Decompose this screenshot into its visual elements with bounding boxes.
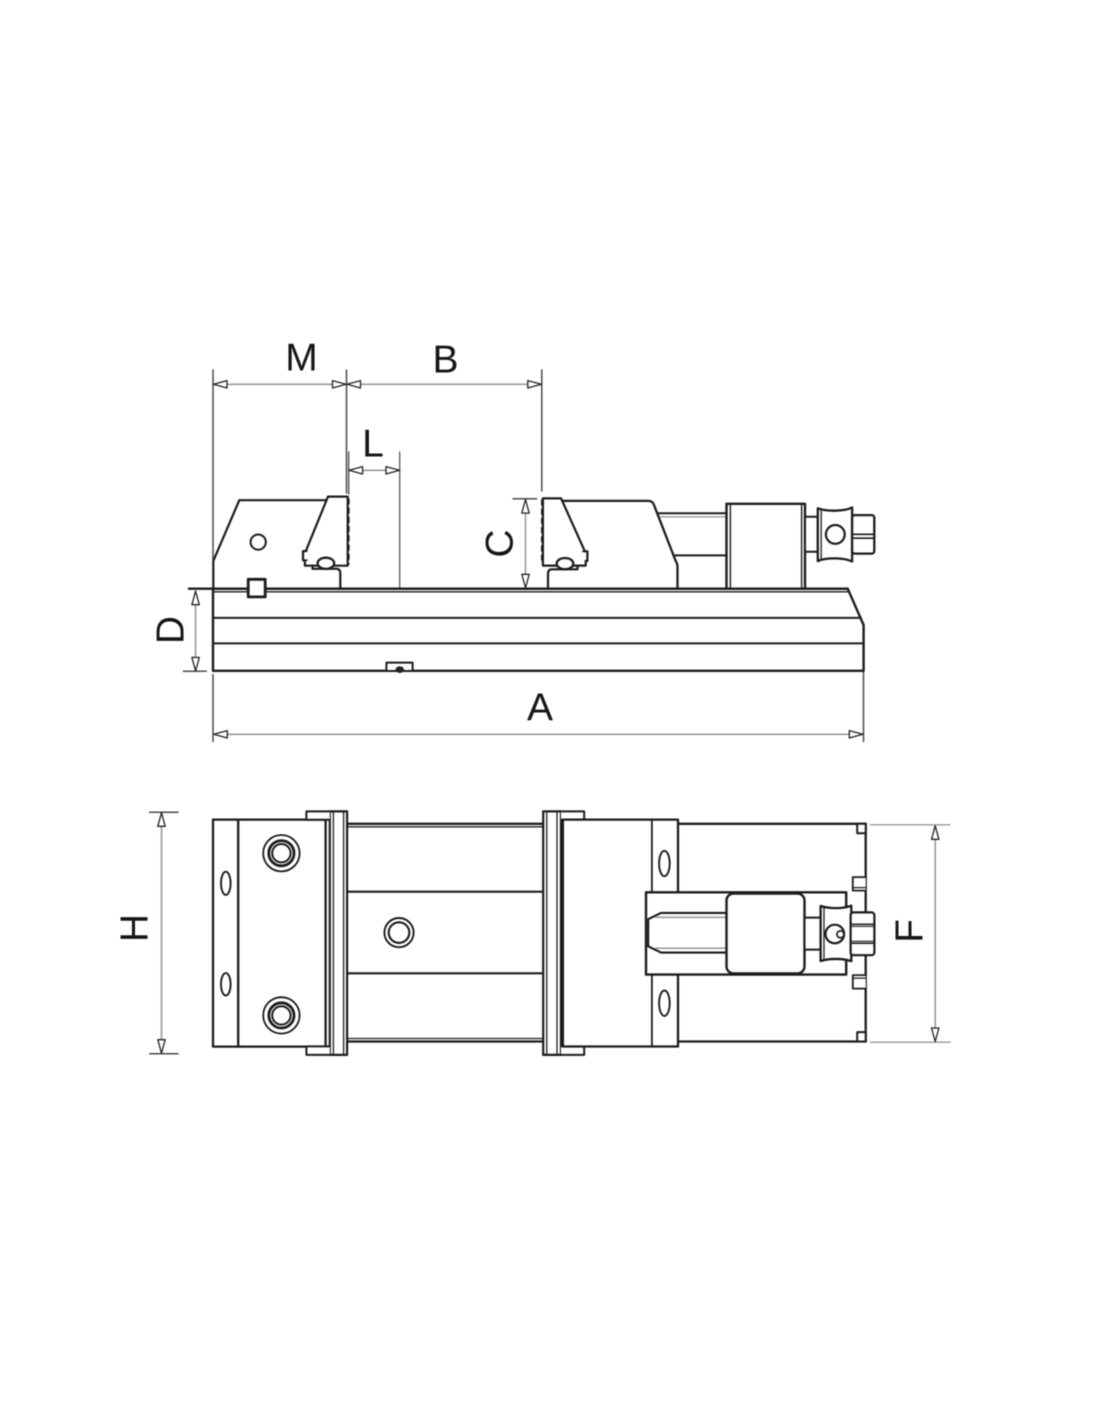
svg-text:C: C	[479, 529, 522, 557]
svg-text:D: D	[150, 616, 193, 644]
svg-text:A: A	[527, 687, 553, 730]
svg-text:M: M	[285, 337, 318, 380]
svg-text:F: F	[889, 919, 932, 943]
svg-text:B: B	[432, 339, 458, 382]
svg-text:L: L	[362, 423, 384, 466]
svg-text:H: H	[114, 914, 157, 942]
